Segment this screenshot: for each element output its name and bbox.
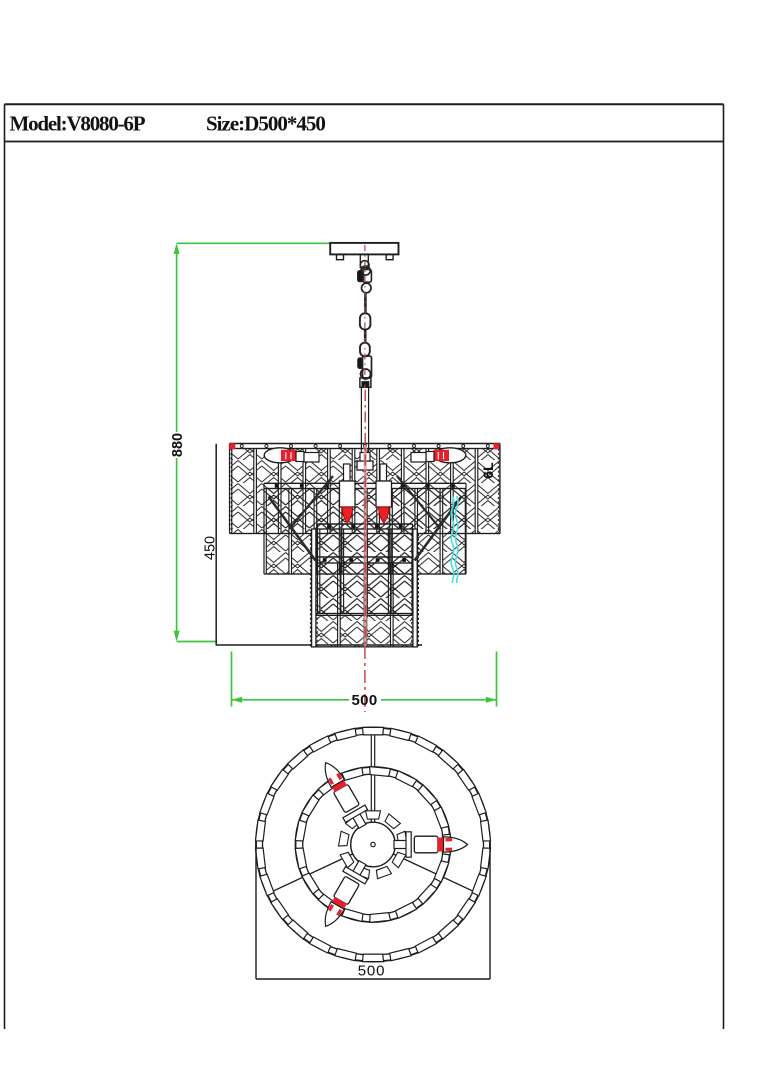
svg-text:6L: 6L [480,462,496,479]
svg-text:500: 500 [358,963,385,980]
svg-text:Model:V8080-6P: Model:V8080-6P [10,112,146,136]
svg-text:880: 880 [170,433,186,457]
svg-text:Size:D500*450: Size:D500*450 [206,112,325,136]
svg-text:450: 450 [203,536,219,560]
svg-text:500: 500 [352,692,378,709]
